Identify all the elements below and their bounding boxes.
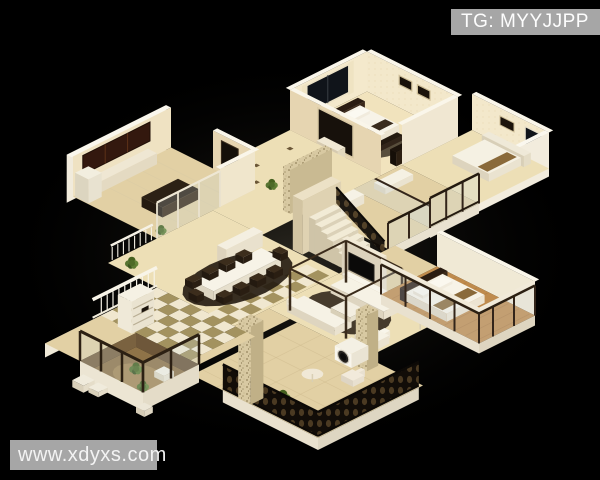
screenshot-root: TG: MYYJJPP www.xdyxs.com <box>0 0 600 480</box>
watermark-top-text: TG: MYYJJPP <box>461 11 589 33</box>
watermark-bottom: www.xdyxs.com <box>10 440 157 470</box>
watermark-bottom-text: www.xdyxs.com <box>18 444 167 467</box>
watermark-top: TG: MYYJJPP <box>451 9 600 35</box>
floor-plan-render <box>0 0 600 480</box>
